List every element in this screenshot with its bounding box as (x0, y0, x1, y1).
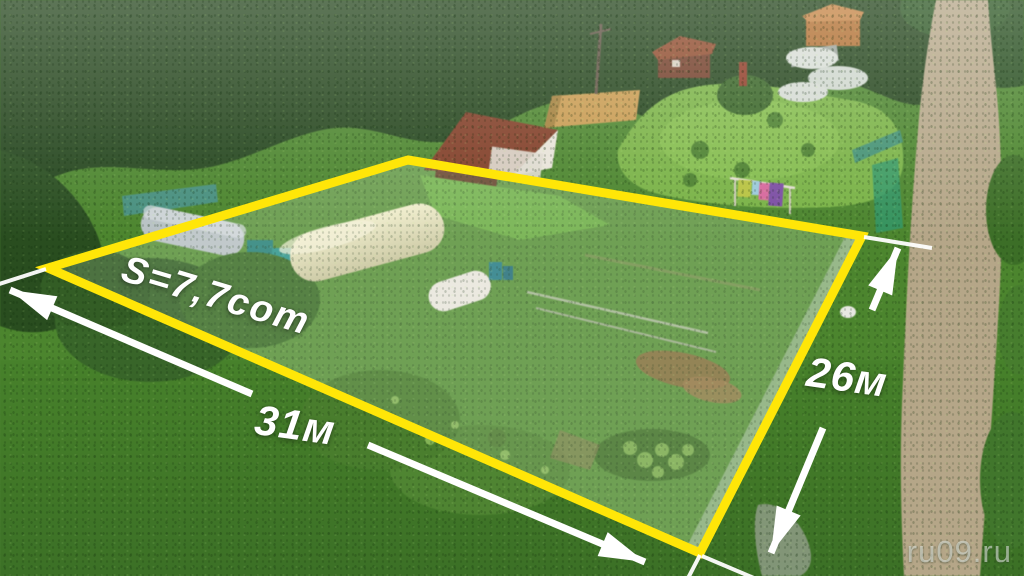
side-dimension-label: 26м (804, 351, 890, 404)
front-dimension-label: 31м (252, 399, 338, 452)
watermark: ru09.ru (907, 534, 1012, 570)
aerial-photo: S=7,7сот 31м 26м ru09.ru (0, 0, 1024, 576)
